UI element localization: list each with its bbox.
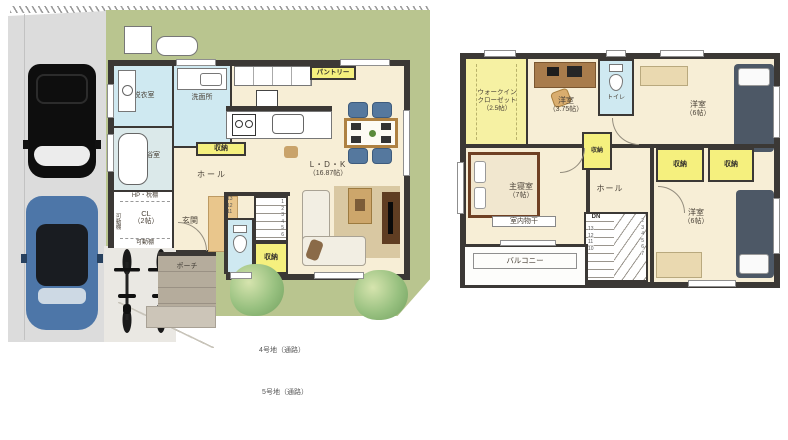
road-label-1: 4号地（通路） [222,347,342,355]
stairs-1f: 1 2 3 4 5 6 [254,196,288,242]
window [176,59,216,66]
wic-size-label: （2.5帖） [472,105,522,113]
wic-label-1: ウォークイン [472,89,522,97]
burner [245,120,253,128]
vanity-bowl [200,73,222,86]
toilet-icon [609,64,623,72]
closet-shelf-bottom-label: 可動棚 [120,238,170,247]
closet-shelf-top-label: HP・枕棚 [120,193,170,202]
room-closet: HP・枕棚 CL （2帖） 可動棚 可動棚 [114,192,174,248]
kitchen-sink-icon [272,114,304,134]
tv-board [382,192,400,244]
bedroom-a-label-block: 洋室 （3.75帖） [536,96,596,114]
place-setting [381,136,391,143]
window [403,110,410,176]
toilet-bowl [609,74,623,91]
storage-small: 収納 [582,132,612,170]
porch: ポーチ [158,252,216,306]
hall-storage: 収納 [196,142,246,156]
master-label-block: 主寝室 （7帖） [486,182,556,200]
stair-num: 7 [641,251,644,258]
window [606,50,626,57]
sedan-mirror-right [97,254,103,263]
pillow [739,254,769,274]
pantry-label: パントリー [312,68,354,78]
bathtub-icon [118,133,148,185]
balcony: バルコニー [462,244,588,288]
window [457,162,464,214]
room-washroom: 洗面所 [174,66,232,148]
stove-icon [232,114,256,136]
bed [736,190,774,278]
storage-a-label: 収納 [658,150,702,180]
closet-label: CL [124,209,168,218]
stairs-dn-label: DN [588,214,604,221]
dining-chair [372,148,392,164]
toilet-2f-label: トイレ [601,95,631,102]
pillow [474,161,486,183]
drying-bar: 室内物干 [492,216,556,227]
bed [734,64,774,152]
hall-2f-label: ホール [588,184,632,194]
window [107,134,114,172]
low-table [348,188,372,224]
sedan-mirror-left [21,254,27,263]
sedan-glass-roof [36,224,88,286]
pantry: パントリー [310,66,356,80]
burner [235,120,243,128]
porch-label: ポーチ [162,263,212,271]
floorplan-canvas: 脱衣室 洗面所 浴室 HP・枕棚 CL （2帖） 可動棚 可動棚 ホール 収納 … [0,0,788,440]
storage-a: 収納 [656,148,704,182]
wic-label-block: ウォークイン クローゼット （2.5帖） [472,89,522,112]
storage-small-label: 収納 [584,134,610,168]
window [314,272,364,279]
hall-storage-label: 収納 [198,144,244,154]
bedroom-a-label: 洋室 [536,96,596,106]
stair-numbers: 1 2 3 4 5 6 [281,199,284,238]
stair-num: 11 [227,209,233,216]
room-wic: ウォークイン クローゼット （2.5帖） [466,59,528,147]
stair-num: 6 [281,232,284,239]
balcony-inner-line: バルコニー [473,253,577,269]
dining-chair [348,102,368,118]
dining-table [344,118,398,148]
window [688,280,736,287]
water-heater-unit [156,36,198,56]
window [340,59,390,66]
place-setting [351,136,361,143]
van-windshield [34,146,90,166]
washer-drum [122,85,133,96]
car-blue-sedan [26,196,98,330]
stairs-2f-right-numbers: 2 3 4 5 6 7 [641,218,644,257]
window [773,86,780,138]
place-setting [381,123,391,130]
room-toilet-2f: トイレ [598,59,634,116]
dresser [656,252,702,278]
window [773,198,780,254]
closet-size-label: （2帖） [124,218,168,226]
pillow [474,187,486,209]
bedroom-a-size: （3.75帖） [536,106,596,114]
desk [534,62,596,88]
bicycle-icon [112,248,142,336]
hall-label: ホール [186,170,238,180]
road-label-2: 5号地（通路） [225,389,345,397]
wall-2f-hall-bedroomc [650,146,654,282]
kitchen-cabinets [234,66,312,86]
stair-num: 10 [588,246,594,253]
storage-b-label: 収納 [710,150,752,180]
ac-unit [124,26,152,54]
stair-numbers-side: 13 12 11 [227,196,233,216]
van-roof-line [36,74,88,104]
monitor-icon [567,66,582,77]
monitor-icon [547,67,559,76]
car-black-van [28,64,96,178]
sedan-windshield [38,288,86,304]
porch-step [146,306,216,328]
vanity-sink-icon [177,68,227,90]
table-plant [369,130,376,137]
window [230,272,252,279]
tv-icon [388,202,393,234]
washroom-label: 洗面所 [176,94,228,102]
toilet-bowl [233,235,247,253]
dining-chair [372,102,392,118]
washer-icon [118,70,136,112]
wic-label-2: クローゼット [472,97,522,105]
window [107,84,114,118]
parking-line [24,14,25,340]
closet-shelf-side-label: 可動棚 [114,202,121,240]
dining-chair [348,148,368,164]
van-mirror-left [23,140,29,149]
toilet-icon [233,225,247,233]
window [500,240,556,246]
dresser [640,66,688,86]
pillow [738,68,770,86]
bedroom-b-size: （6帖） [668,110,728,118]
stairs-2f-left-numbers: 13 12 11 10 [588,226,594,252]
table-item [355,199,365,211]
stairs-2f: DN 13 12 11 10 2 3 4 5 6 7 [584,212,648,282]
stool [284,146,298,158]
bedroom-c-size: （6帖） [666,218,726,226]
van-mirror-right [95,140,101,149]
balcony-label: バルコニー [474,254,576,268]
bedroom-b-label: 洋室 [668,100,728,110]
window [660,50,704,57]
master-size: （7帖） [486,192,556,200]
storage-b: 収納 [708,148,754,182]
master-label: 主寝室 [486,182,556,192]
ldk-size-label: （16.87帖） [298,170,358,178]
room-bath: 浴室 [114,128,174,192]
bedroom-b-label-block: 洋室 （6帖） [668,100,728,118]
window [484,50,516,57]
drying-bar-label: 室内物干 [493,217,555,226]
place-setting [351,123,361,130]
room-dressing: 脱衣室 [114,66,174,128]
